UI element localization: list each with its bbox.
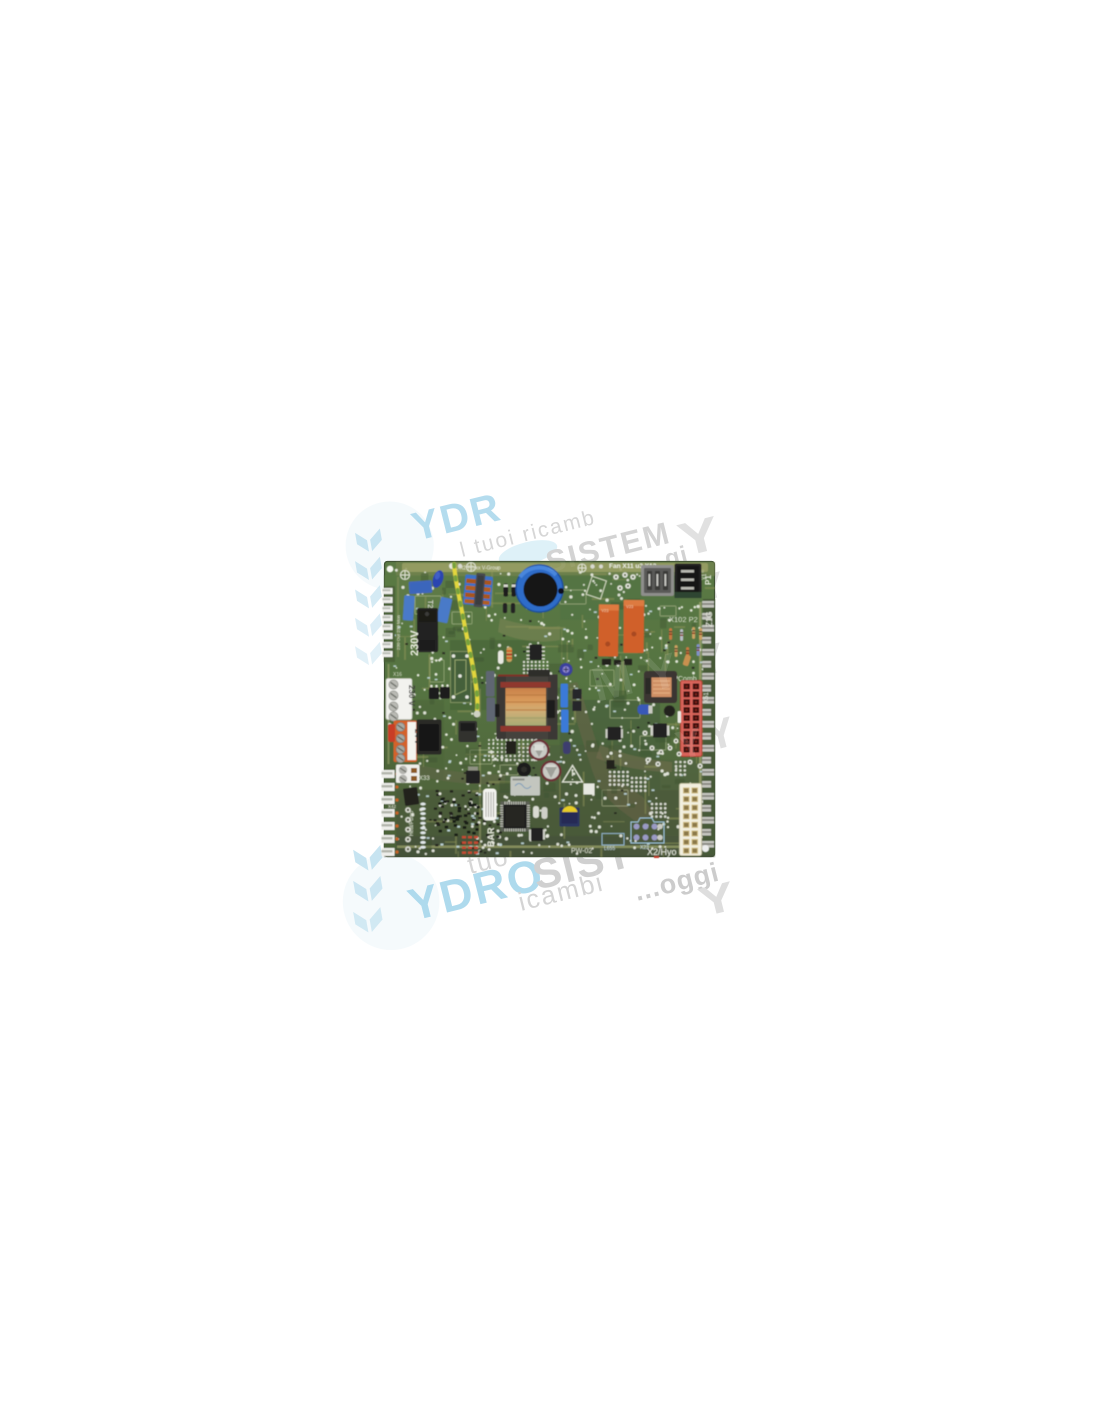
- svg-text:Z1G: Z1G: [705, 611, 714, 627]
- svg-text:P1: P1: [704, 575, 713, 585]
- svg-text:X2/Hyo: X2/Hyo: [647, 847, 677, 857]
- svg-text:L655: L655: [604, 846, 615, 852]
- svg-text:230 Out 230 Mon: 230 Out 230 Mon: [396, 615, 401, 650]
- svg-text:BAR: BAR: [486, 827, 496, 847]
- svg-text:X42: X42: [388, 804, 397, 809]
- svg-text:PW-02: PW-02: [571, 848, 592, 855]
- svg-text:230 V: 230 V: [407, 685, 416, 707]
- svg-text:230V: 230V: [409, 630, 421, 656]
- svg-text:T2: T2: [426, 600, 433, 608]
- svg-text:Heat/Pump: Heat/Pump: [409, 811, 415, 836]
- svg-text:V23: V23: [626, 604, 634, 609]
- svg-text:X16: X16: [393, 672, 402, 678]
- svg-text:X102 P2: X102 P2: [669, 615, 698, 624]
- svg-text:X33: X33: [419, 776, 430, 782]
- svg-text:X51: X51: [704, 692, 710, 703]
- svg-text:V23: V23: [601, 608, 609, 613]
